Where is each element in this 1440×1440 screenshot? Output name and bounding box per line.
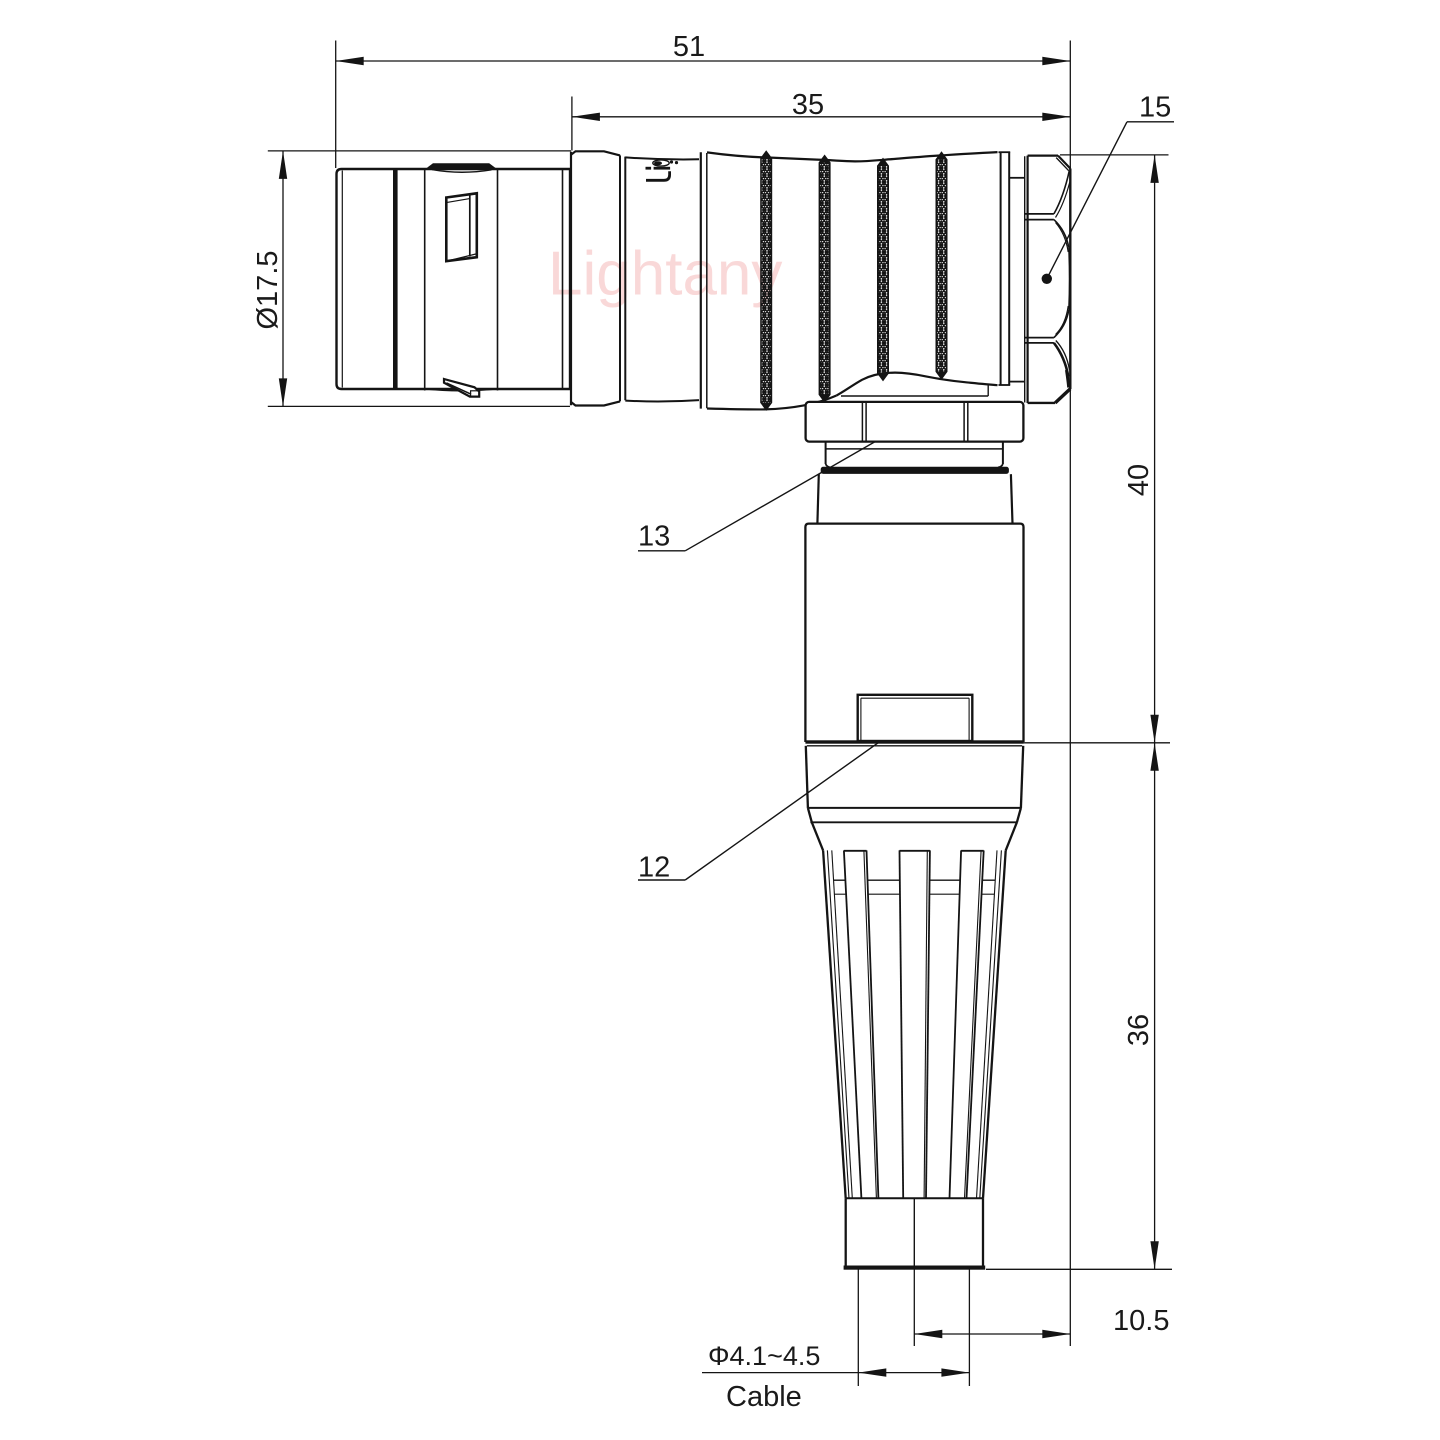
svg-text:Ø17.5: Ø17.5 [252,251,284,330]
svg-text:Φ4.1~4.5: Φ4.1~4.5 [708,1341,820,1371]
svg-text:13: 13 [638,521,670,553]
svg-text:Cable: Cable [726,1381,802,1413]
svg-text:12: 12 [638,852,670,884]
svg-text:36: 36 [1123,1014,1155,1046]
svg-text:35: 35 [792,89,824,121]
svg-text:Lightany: Lightany [548,240,782,309]
svg-text:40: 40 [1123,464,1155,496]
svg-text:51: 51 [673,31,705,63]
svg-text:10.5: 10.5 [1113,1305,1169,1337]
svg-text:15: 15 [1139,92,1171,124]
